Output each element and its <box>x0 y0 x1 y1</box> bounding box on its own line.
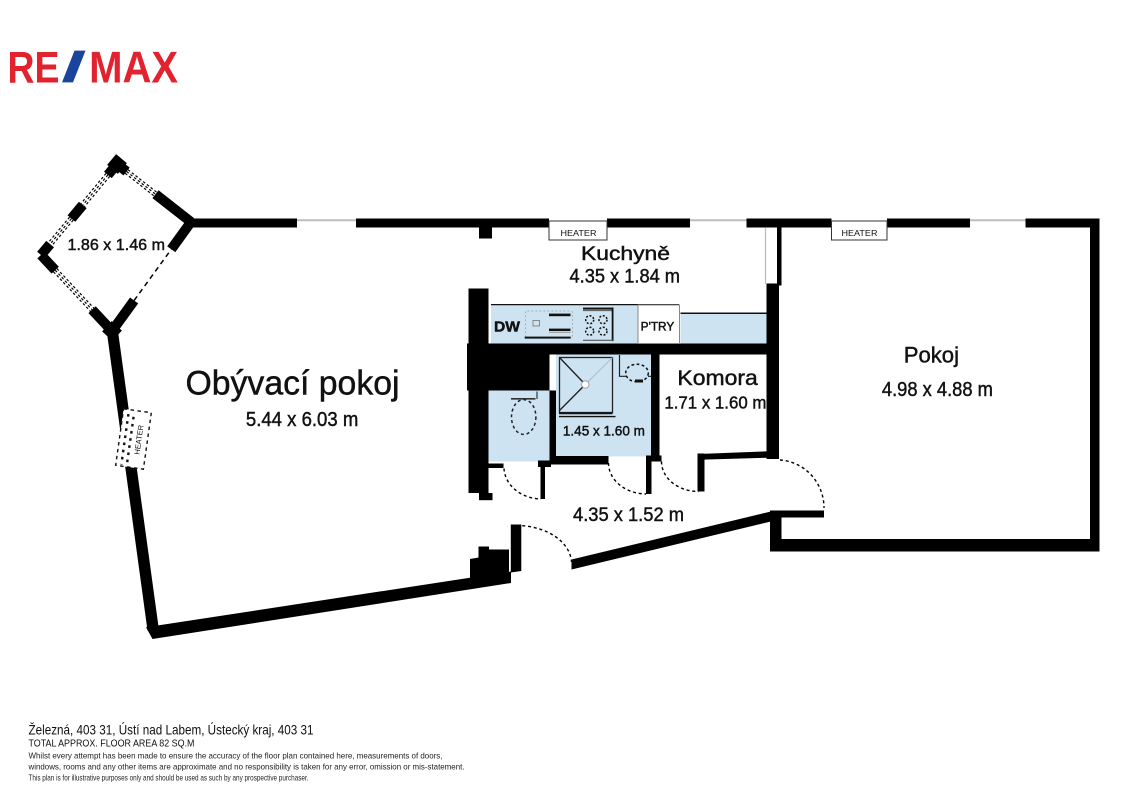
svg-text:TOTAL APPROX. FLOOR AREA 82 SQ: TOTAL APPROX. FLOOR AREA 82 SQ.M <box>29 739 195 750</box>
svg-text:5.44 x 6.03 m: 5.44 x 6.03 m <box>246 408 358 431</box>
svg-text:Whilst every attempt has been: Whilst every attempt has been made to en… <box>29 751 443 761</box>
svg-text:1.71 x 1.60 m: 1.71 x 1.60 m <box>664 393 766 413</box>
svg-text:Železná, 403 31, Ústí nad Labe: Železná, 403 31, Ústí nad Labem, Ústecký… <box>29 722 314 738</box>
svg-text:Komora: Komora <box>677 367 758 390</box>
svg-text:4.35 x 1.52 m: 4.35 x 1.52 m <box>573 504 684 526</box>
svg-text:This plan is for illustrative: This plan is for illustrative purposes o… <box>29 773 309 783</box>
svg-text:4.98 x 4.88 m: 4.98 x 4.88 m <box>882 378 993 401</box>
svg-text:Kuchyně: Kuchyně <box>581 244 670 265</box>
svg-text:1.45 x 1.60 m: 1.45 x 1.60 m <box>563 423 645 439</box>
svg-text:HEATER: HEATER <box>561 228 597 238</box>
svg-text:RE: RE <box>8 42 60 92</box>
svg-text:Pokoj: Pokoj <box>904 343 959 368</box>
svg-text:Obývací pokoj: Obývací pokoj <box>186 365 400 403</box>
svg-text:P'TRY: P'TRY <box>641 322 675 334</box>
svg-text:1.86 x 1.46 m: 1.86 x 1.46 m <box>68 237 166 254</box>
svg-text:windows, rooms and any other i: windows, rooms and any other items are a… <box>28 762 465 772</box>
svg-text:DW: DW <box>494 319 521 336</box>
svg-text:4.35 x 1.84 m: 4.35 x 1.84 m <box>570 266 681 288</box>
svg-text:HEATER: HEATER <box>842 228 878 238</box>
svg-text:MAX: MAX <box>89 43 178 92</box>
